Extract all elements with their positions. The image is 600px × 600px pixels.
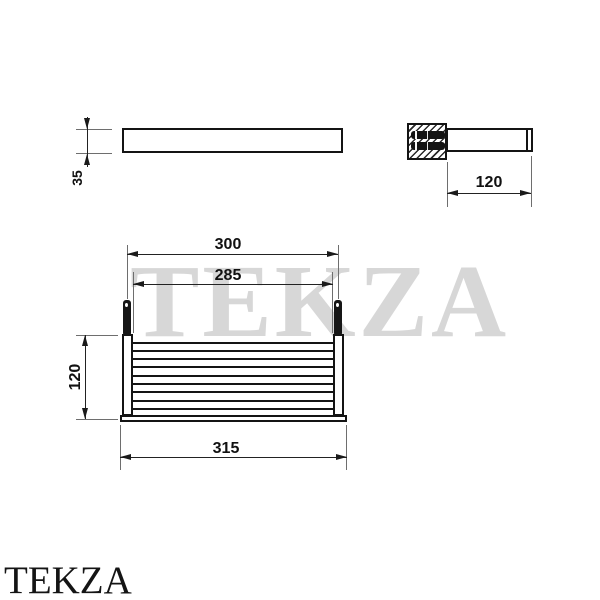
brand-logo-text: TEKZA xyxy=(4,561,132,600)
front-view-mount-span-label: 300 xyxy=(200,237,256,253)
side-view-extension-line-bottom xyxy=(76,153,112,154)
dim300-dimension-line xyxy=(127,254,338,255)
pin-hole-icon xyxy=(336,303,339,307)
basket-wire-slat xyxy=(133,400,333,402)
arrowhead-left-icon xyxy=(447,190,458,196)
side-view-extension-line-top xyxy=(76,129,112,130)
end-view-extension-line-left xyxy=(447,162,448,207)
arrowhead-up-icon xyxy=(82,335,88,346)
basket-wire-slat xyxy=(133,358,333,360)
side-view-height-dimension-label: 35 xyxy=(70,158,84,198)
basket-wire-slat xyxy=(133,350,333,352)
basket-wire-slat xyxy=(133,366,333,368)
basket-wire-slat xyxy=(133,375,333,377)
arrowhead-right-icon xyxy=(520,190,531,196)
arrowhead-left-icon xyxy=(133,281,144,287)
end-view-extension-line-right xyxy=(531,156,532,207)
dim315-extension-line-right xyxy=(346,425,347,470)
brand-watermark: TEKZA xyxy=(130,250,509,354)
front-view-inner-width-label: 285 xyxy=(200,268,256,284)
front-view-right-post xyxy=(333,334,344,416)
end-view-arm-profile xyxy=(446,128,533,152)
dim315-dimension-line xyxy=(120,457,347,458)
front-view-left-post xyxy=(122,334,133,416)
dim285-dimension-line xyxy=(133,284,333,285)
basket-wire-slat xyxy=(133,408,333,410)
arrowhead-up-icon xyxy=(84,154,90,165)
dim120v-extension-line-bottom xyxy=(76,419,118,420)
dim300-extension-line-right xyxy=(338,245,339,299)
basket-wire-slat xyxy=(133,383,333,385)
front-view-right-mount-pin xyxy=(334,300,342,335)
front-view-bottom-rail xyxy=(120,415,347,422)
arrowhead-right-icon xyxy=(336,454,347,460)
dim120v-dimension-line xyxy=(85,335,86,419)
end-view-arm-endcap xyxy=(526,130,528,150)
side-view-shelf-profile xyxy=(122,128,343,153)
technical-drawing-canvas: TEKZA 35 120 xyxy=(0,0,600,600)
end-view-dimension-line-120 xyxy=(447,193,531,194)
basket-wire-slat xyxy=(133,342,333,344)
dim315-extension-line-left xyxy=(120,425,121,470)
end-view-depth-dimension-label: 120 xyxy=(467,175,511,191)
front-view-overall-width-label: 315 xyxy=(198,441,254,457)
arrowhead-left-icon xyxy=(127,251,138,257)
arrowhead-left-icon xyxy=(120,454,131,460)
end-view-fastener-top xyxy=(411,131,445,139)
basket-wire-slat xyxy=(133,391,333,393)
front-view-left-mount-pin xyxy=(123,300,131,335)
arrowhead-right-icon xyxy=(327,251,338,257)
arrowhead-right-icon xyxy=(322,281,333,287)
front-view-height-dimension-label: 120 xyxy=(68,355,84,399)
end-view-fastener-bottom xyxy=(411,142,445,150)
arrowhead-down-icon xyxy=(82,408,88,419)
arrowhead-down-icon xyxy=(84,118,90,129)
pin-hole-icon xyxy=(125,303,128,307)
